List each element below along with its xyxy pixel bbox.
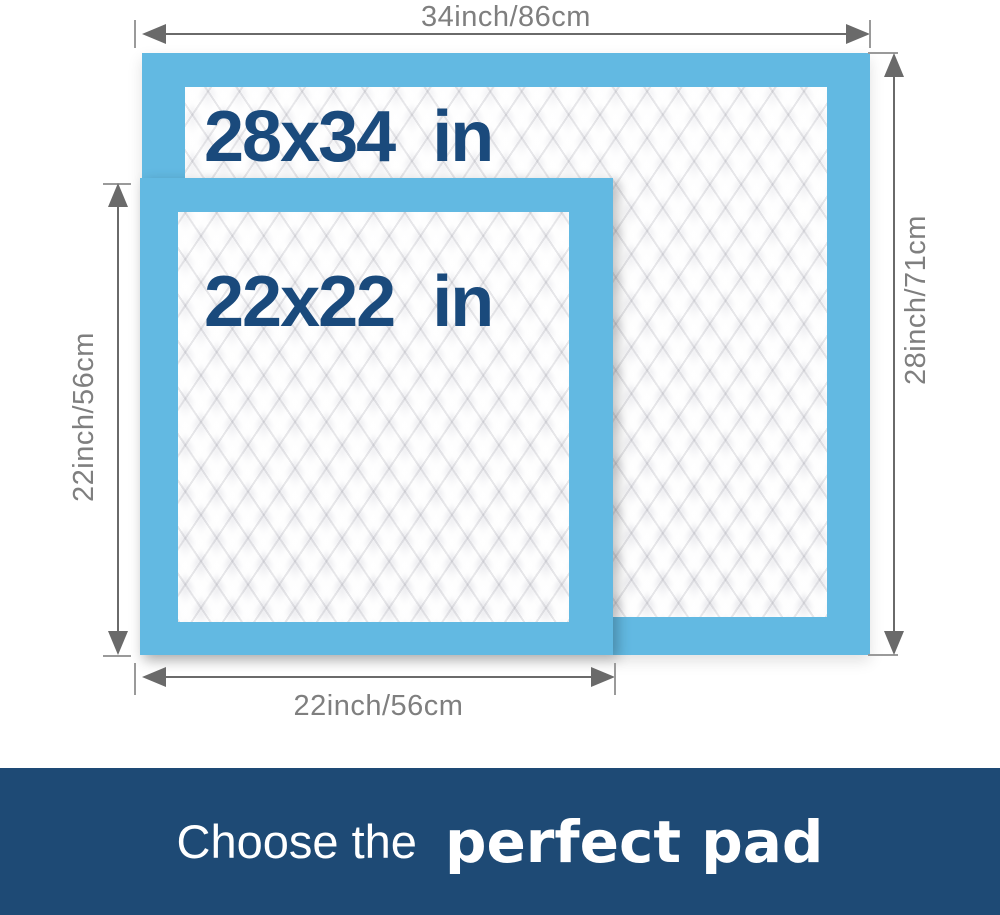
arrowhead-up-icon	[108, 183, 128, 207]
dimension-right-label: 28inch/71cm	[901, 215, 933, 385]
dimension-top-line	[146, 33, 866, 35]
dimension-top-width: 34inch/86cm	[142, 0, 870, 50]
dimension-left-line	[117, 187, 119, 651]
dimension-tick-icon	[614, 663, 616, 695]
dimension-left-height: 22inch/56cm	[103, 178, 143, 655]
banner-prefix-text: Choose the	[177, 814, 417, 869]
dimension-tick-icon	[134, 663, 136, 695]
arrowhead-down-icon	[108, 631, 128, 655]
banner: Choose the perfect pad	[0, 768, 1000, 915]
pad-small: 22x22 in	[140, 178, 613, 655]
dimension-tick-icon	[103, 655, 131, 657]
dimension-bottom-label: 22inch/56cm	[294, 691, 464, 723]
dimension-right-height: 28inch/71cm	[868, 53, 938, 655]
arrowhead-right-icon	[591, 667, 615, 687]
dimension-left-label: 22inch/56cm	[69, 332, 101, 502]
dimension-tick-icon	[134, 20, 136, 48]
arrowhead-right-icon	[846, 24, 870, 44]
dimension-right-line	[893, 57, 895, 651]
arrowhead-left-icon	[142, 24, 166, 44]
dimension-top-label: 34inch/86cm	[421, 2, 591, 34]
pad-large-size-label: 28x34 in	[204, 101, 492, 173]
product-size-diagram: 28x34 in 22x22 in 34inch/86cm 28inch/71c…	[0, 0, 1000, 915]
arrowhead-down-icon	[884, 631, 904, 655]
pad-small-size-label: 22x22 in	[204, 266, 492, 338]
arrowhead-up-icon	[884, 53, 904, 77]
banner-highlight-text: perfect pad	[445, 808, 824, 876]
dimension-tick-icon	[869, 20, 871, 48]
dimension-bottom-width: 22inch/56cm	[142, 655, 615, 727]
arrowhead-left-icon	[142, 667, 166, 687]
dimension-bottom-line	[146, 676, 611, 678]
